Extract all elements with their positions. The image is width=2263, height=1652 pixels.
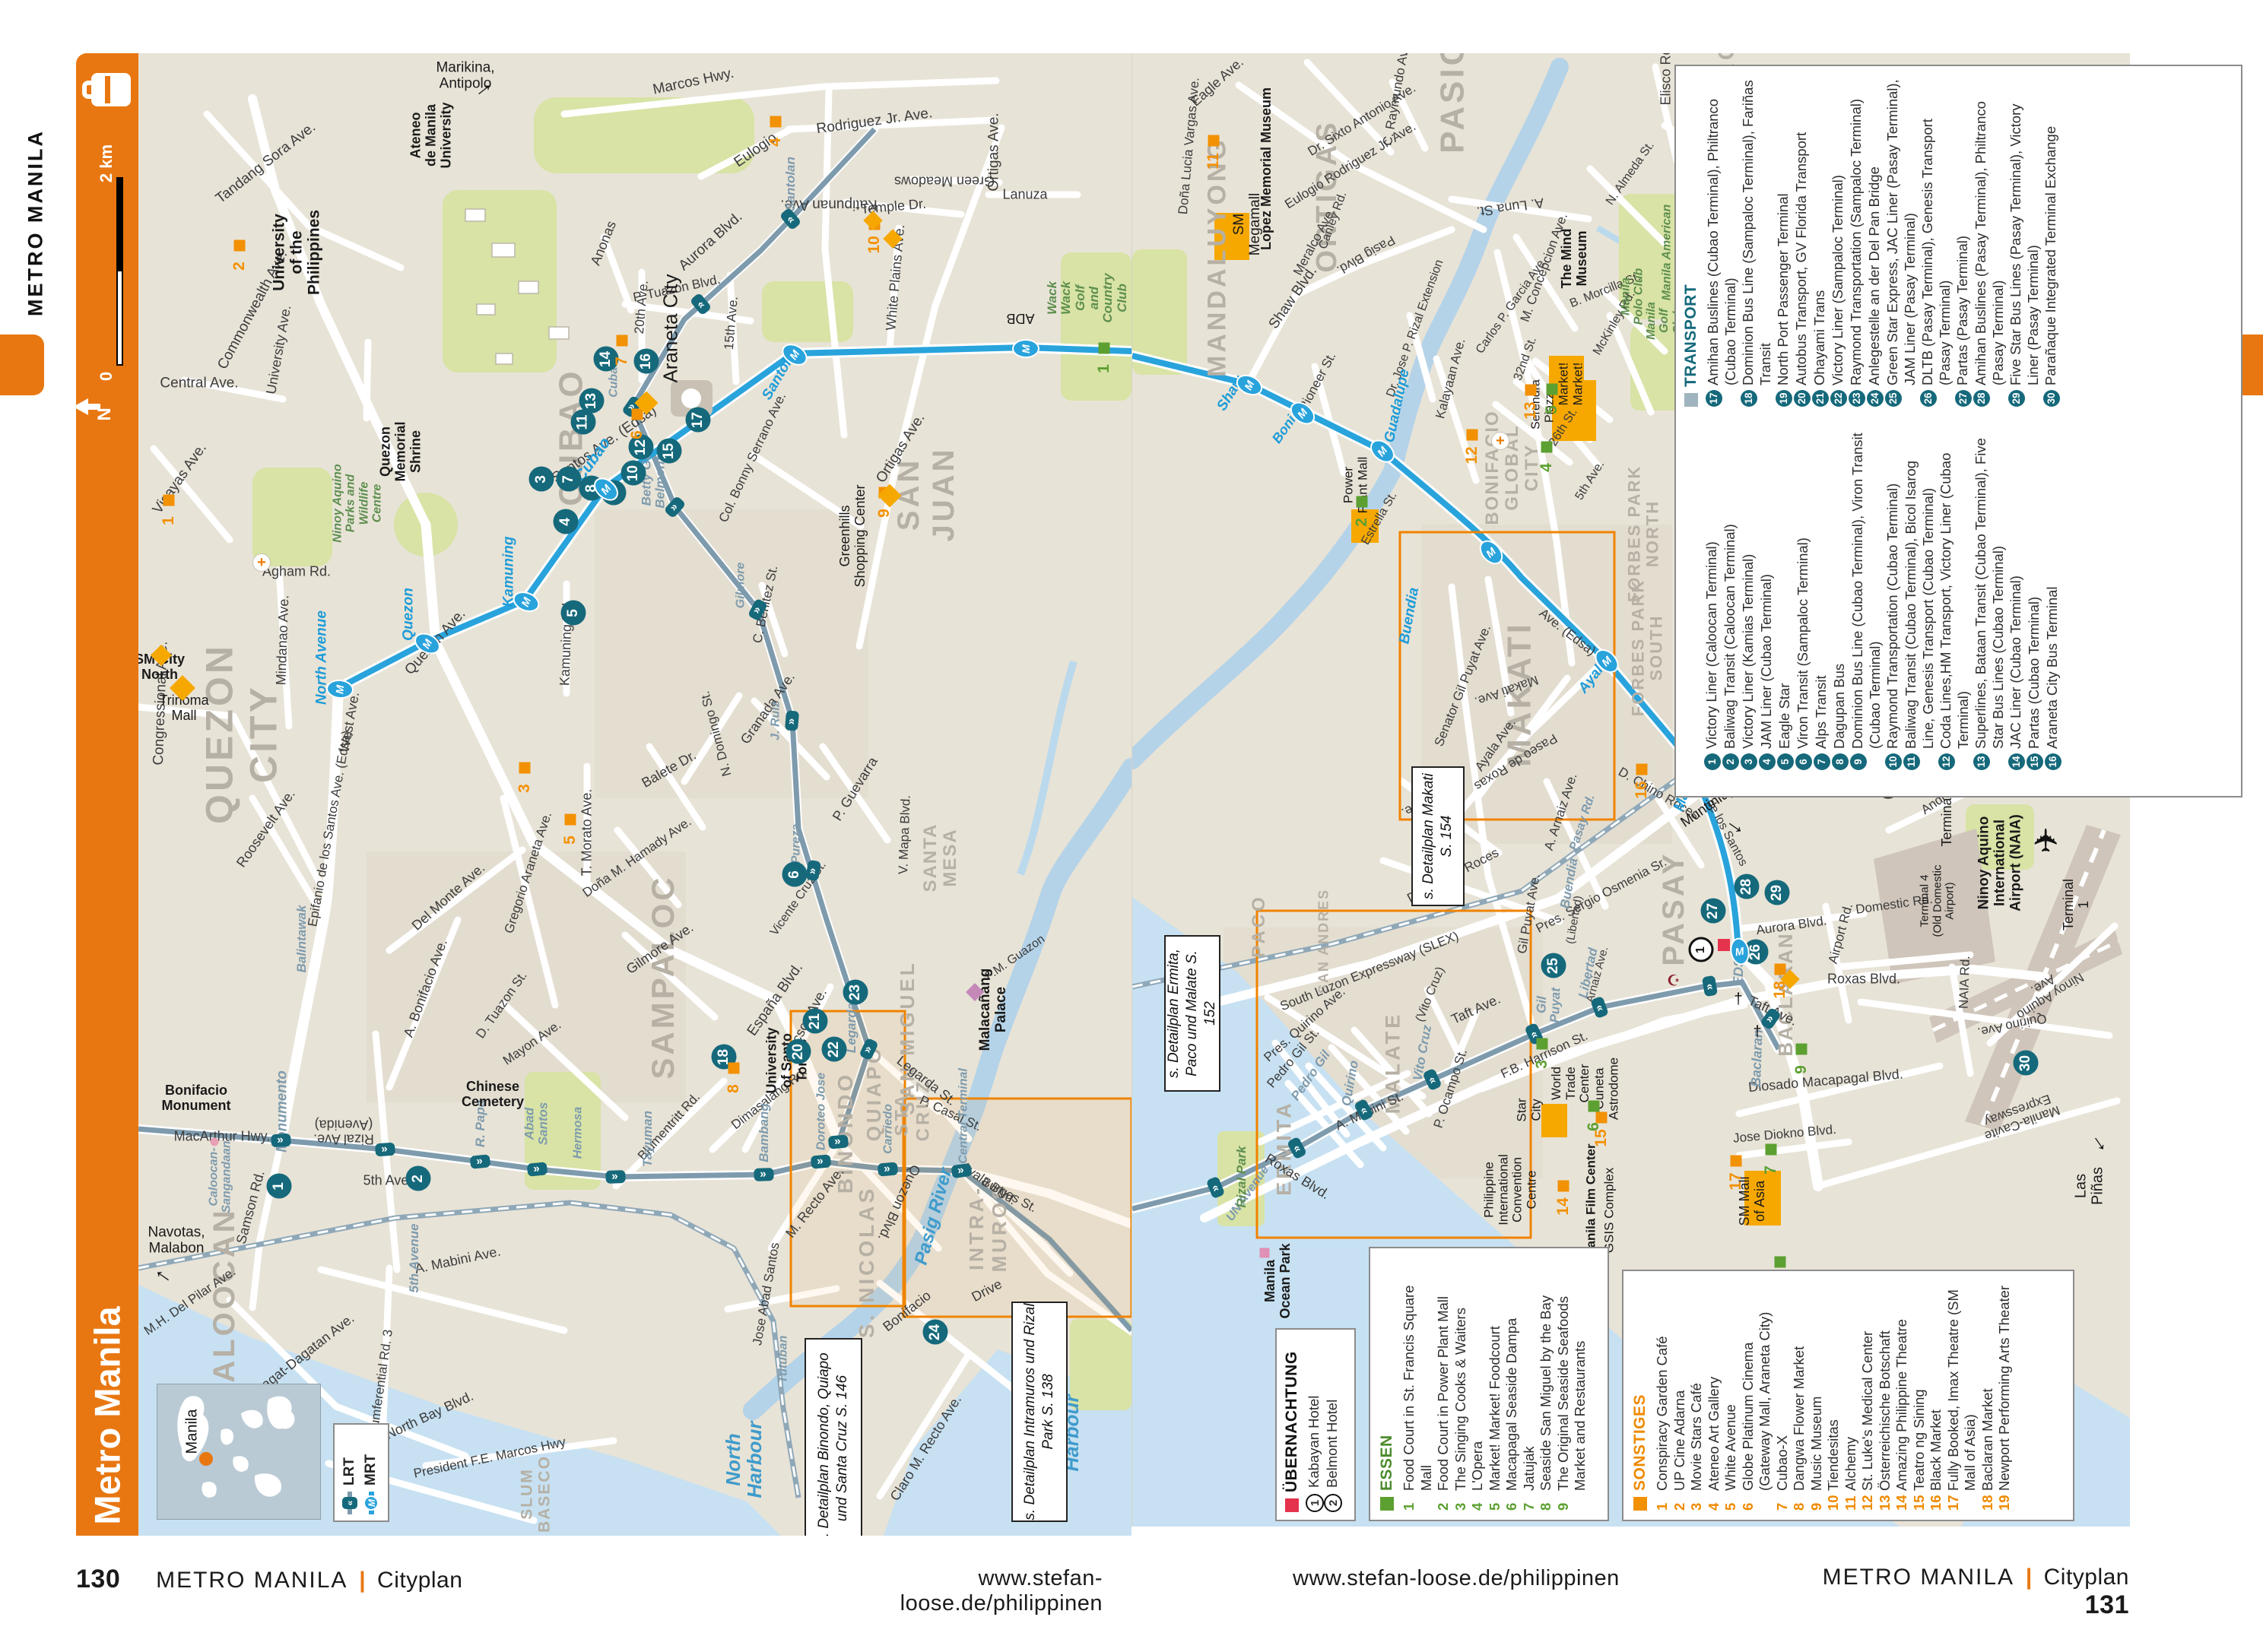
sonstiges-marker — [1636, 764, 1648, 775]
sonstiges-item-label: St. Luke's Medical Center — [1859, 1280, 1877, 1491]
page-title: Metro Manila — [87, 1306, 129, 1524]
transport-legend-item: 30Parañaque Integrated Terminal Exchange — [2042, 72, 2060, 407]
book-spread: { "title": "Metro Manila", "margin_label… — [0, 0, 2263, 1652]
transport-legend-item: 7Alps Transit — [1813, 431, 1830, 770]
lrt-line-icon: « — [348, 1492, 352, 1514]
transport-item-label: Dagupan Bus — [1831, 431, 1849, 749]
sonstiges-marker — [617, 335, 628, 347]
transport-item-number: 27 — [1955, 390, 1972, 407]
transport-legend-item: 22Victory Liner (Sampaloc Terminal) — [1830, 72, 1847, 407]
sonstiges-item: 2UP Cine Adarna — [1671, 1280, 1689, 1511]
transport-item-label: Baliwag Transit (Cubao Terminal), Bicol … — [1903, 431, 1937, 749]
essen-marker — [1357, 496, 1368, 508]
sonstiges-item-number: 17 — [1945, 1491, 1979, 1511]
transport-item-number: 19 — [1776, 390, 1792, 407]
transport-legend-item: 28Amihan Buslines (Pasay Terminal), Phil… — [1973, 72, 2007, 407]
essen-item: 8Seaside San Miguel by the Bay — [1538, 1257, 1555, 1511]
transport-legend-item: 12Coda Lines,HM Transport, Victory Liner… — [1938, 431, 1972, 770]
monument-dot — [211, 1138, 219, 1146]
transport-item-label: Partas (Cubao Terminal) — [2026, 431, 2043, 749]
transport-item-label: Ohayami Trans — [1811, 72, 1829, 385]
detail-plan-reference[interactable]: s. Detailplan Ermita, Paco und Malate S.… — [1164, 935, 1220, 1092]
sonstiges-marker — [1208, 135, 1220, 147]
marker-number: 9 — [875, 509, 893, 518]
sonstiges-item: 19Newport Performing Arts Theater — [1996, 1280, 2014, 1511]
essen-marker — [1537, 1038, 1548, 1050]
marker-number: 2 — [230, 262, 249, 271]
sonstiges-item-label: Alchemy — [1842, 1280, 1860, 1491]
transport-legend-item: 18Dominion Bus Line (Sampaloc Terminal),… — [1740, 72, 1774, 407]
transport-legend-item: 25Green Star Express, JAC Liner (Pasay T… — [1884, 72, 1919, 407]
essen-item-number: 1 — [1401, 1491, 1435, 1511]
transport-item-number: 3 — [1741, 753, 1757, 770]
sonstiges-item-number: 3 — [1688, 1491, 1706, 1511]
essen-items: 1Food Court in St. Francis Square Mall2F… — [1401, 1257, 1589, 1511]
sonstiges-item: 13Österreichische Botschaft — [1877, 1280, 1894, 1511]
marker-number: 6 — [628, 430, 646, 439]
sonstiges-item-number: 2 — [1671, 1491, 1689, 1511]
footer-right: METRO MANILA | Cityplan 131 — [1795, 1565, 2129, 1620]
essen-item-number: 5 — [1487, 1491, 1504, 1511]
transport-legend-item: 16Araneta City Bus Terminal — [2044, 431, 2061, 770]
transport-legend-item: 9Dominion Bus Line (Cubao Terminal), Vir… — [1849, 431, 1884, 770]
lrt-station-icon: « — [470, 1154, 491, 1169]
transport-item-label: Eagle Star — [1776, 431, 1794, 749]
footer-left-subtitle: Cityplan — [377, 1568, 462, 1593]
transport-item-label: Araneta City Bus Terminal — [2044, 431, 2061, 749]
transport-item-label: Green Star Express, JAC Liner (Pasay Ter… — [1884, 72, 1919, 385]
transport-legend-item: 11Baliwag Transit (Cubao Terminal), Bico… — [1903, 431, 1937, 770]
footer-right-title: METRO MANILA — [1823, 1565, 2014, 1590]
mrt-station-icon: M — [1012, 339, 1039, 358]
sonstiges-item: 7Cubao-X — [1774, 1280, 1792, 1511]
transport-item-number: 22 — [1830, 390, 1847, 407]
lrt-station-icon: « — [605, 1170, 626, 1184]
hospital-icon: + — [252, 553, 271, 572]
sonstiges-item: 3Movie Stars Café — [1688, 1280, 1706, 1511]
transport-item-number: 6 — [1795, 753, 1812, 770]
sonstiges-item-number: 15 — [1911, 1491, 1928, 1511]
church-icon: † — [1753, 1024, 1761, 1042]
transport-item-label: Amihan Buslines (Pasay Terminal), Philtr… — [1973, 72, 2007, 385]
marker-number: 4 — [766, 138, 785, 147]
marker-number: 3 — [1533, 1060, 1551, 1069]
footer-left-page-number: 130 — [76, 1565, 120, 1593]
transport-legend-item: 17Amihan Buslines (Cubao Terminal), Phil… — [1705, 72, 1739, 407]
transport-item-label: Alps Transit — [1813, 431, 1830, 749]
north-arrow-icon — [73, 398, 88, 415]
transport-terminal-marker: 28 — [1735, 874, 1760, 899]
transport-item-label: Partas (Pasay Terminal) — [1954, 72, 1972, 385]
inset-city-label: Manila — [184, 1409, 202, 1454]
scale-bar — [116, 177, 123, 366]
transport-legend-box: 1Victory Liner (Caloocan Terminal)2Baliw… — [1674, 65, 2242, 797]
page-tab-left[interactable] — [0, 335, 44, 395]
sonstiges-item: 17Fully Booked, Imax Theatre (SM Mall of… — [1945, 1280, 1979, 1511]
essen-marker — [1589, 1101, 1600, 1112]
lrt-station-icon: « — [527, 1162, 548, 1177]
footer-right-page-number: 131 — [2085, 1590, 2129, 1619]
transport-item-label: Dominion Bus Line (Cubao Terminal), Viro… — [1849, 431, 1884, 749]
essen-item-label: Food Court in Power Plant Mall — [1435, 1257, 1452, 1491]
detail-plan-reference[interactable]: s. Detailplan Intramuros und Rizal Park … — [1011, 1302, 1068, 1522]
uebernachtung-item-label: Kabayan Hotel — [1306, 1337, 1324, 1488]
transport-item-number: 24 — [1867, 390, 1884, 407]
marker-number: 4 — [1538, 463, 1556, 472]
sonstiges-item-label: Cubao-X — [1774, 1280, 1792, 1491]
essen-heading: ESSEN — [1378, 1257, 1396, 1511]
marker-number: 14 — [1554, 1197, 1573, 1215]
transport-item-number: 21 — [1812, 390, 1829, 407]
transport-item-number: 1 — [1704, 753, 1721, 770]
sonstiges-item-label: Globe Platinum Cinema (Gateway Mall, Ara… — [1740, 1280, 1774, 1491]
sonstiges-item-number: 8 — [1791, 1491, 1808, 1511]
transport-terminal-marker: 25 — [1541, 953, 1566, 978]
essen-item-label: Seaside San Miguel by the Bay — [1538, 1257, 1555, 1491]
sonstiges-marker — [234, 240, 246, 252]
publisher-luggage-icon — [91, 73, 131, 106]
transport-item-number: 7 — [1814, 753, 1830, 770]
detail-plan-reference[interactable]: s. Detailplan Binondo, Quiapo und Santa … — [805, 1338, 862, 1536]
essen-item-number: 9 — [1555, 1491, 1589, 1511]
sonstiges-item: 11Alchemy — [1842, 1280, 1860, 1511]
marker-number: 5 — [1543, 405, 1561, 414]
sonstiges-item-label: Fully Booked, Imax Theatre (SM Mall of A… — [1945, 1280, 1979, 1491]
footer-left-separator: | — [359, 1568, 366, 1593]
map-left-page: QUEZON CITYCUBAOSAMPALOCSAN JUANCALOOCAN… — [138, 53, 1131, 1536]
sonstiges-item-label: Black Market — [1928, 1280, 1945, 1491]
transport-item-number: 5 — [1777, 753, 1794, 770]
transport-terminal-marker: 1 — [267, 1174, 292, 1199]
transport-legend-item: 10Raymond Transportation (Cubao Terminal… — [1884, 431, 1902, 770]
transport-terminal-marker: 29 — [1765, 880, 1790, 905]
sonstiges-item: 1Conspiracy Garden Café — [1654, 1280, 1671, 1511]
essen-item: 7Jatujak — [1521, 1257, 1538, 1511]
rail-legend-mrt-row: M MRT — [360, 1431, 382, 1514]
inset-locator-map: Manila — [157, 1384, 321, 1520]
transport-item-label: Victory Liner (Caloocan Terminal) — [1703, 431, 1721, 749]
sonstiges-marker — [770, 116, 782, 128]
mrt-label: MRT — [363, 1454, 379, 1486]
transport-item-number: 17 — [1706, 390, 1722, 407]
transport-legend-item: 23Raymond Transportation (Sampaloc Termi… — [1848, 72, 1865, 407]
sonstiges-item-number: 4 — [1706, 1491, 1723, 1511]
transport-legend-item: 27Partas (Pasay Terminal) — [1954, 72, 1972, 407]
sonstiges-marker — [565, 814, 576, 826]
essen-item: 9The Original Seaside Seafoods Market an… — [1555, 1257, 1589, 1511]
rail-legend-box: « LRT M MRT — [333, 1423, 389, 1522]
sonstiges-item-label: Ateneo Art Gallery — [1706, 1280, 1723, 1491]
essen-item-number: 4 — [1469, 1491, 1487, 1511]
essen-item-label: Food Court in St. Francis Square Mall — [1401, 1257, 1435, 1491]
sonstiges-item-number: 5 — [1722, 1491, 1740, 1511]
marker-number: 5 — [561, 836, 579, 845]
transport-terminal-marker: 7 — [557, 467, 582, 492]
essen-item-label: Macapagal Seaside Dampa — [1503, 1257, 1521, 1491]
transport-terminal-marker: 22 — [822, 1037, 847, 1062]
essen-marker — [1541, 442, 1553, 453]
essen-item: 5Market! Market! Foodcourt — [1487, 1257, 1504, 1511]
lrt-station-icon: « — [754, 1168, 774, 1181]
marker-number: 12 — [1463, 446, 1481, 464]
lrt-station-icon: « — [375, 1143, 395, 1157]
sonstiges-item-label: Dangwa Flower Market — [1791, 1280, 1808, 1491]
transport-item-number: 13 — [1973, 753, 1990, 770]
transport-list-17-30: TRANSPORT17Amihan Buslines (Cubao Termin… — [1682, 72, 2061, 407]
essen-item-number: 8 — [1538, 1491, 1555, 1511]
essen-marker — [1796, 1044, 1808, 1055]
sonstiges-item-number: 11 — [1842, 1491, 1860, 1511]
uebernachtung-item: 2Belmont Hotel — [1324, 1337, 1342, 1512]
transport-heading: TRANSPORT — [1682, 72, 1700, 407]
sonstiges-item-number: 16 — [1928, 1491, 1945, 1511]
transport-terminal-marker: 15 — [657, 439, 682, 464]
transport-item-label: JAC Liner (Cubao Terminal) — [2007, 431, 2025, 749]
transport-item-number: 15 — [2027, 753, 2043, 770]
transport-item-number: 16 — [2045, 753, 2061, 770]
sonstiges-item-label: Tiendesitas — [1825, 1280, 1842, 1491]
transport-terminal-marker: 13 — [579, 388, 605, 414]
lrt-label: LRT — [341, 1457, 358, 1486]
transport-item-label: Five Star Bus Lines (Pasay Terminal), Vi… — [2007, 72, 2042, 385]
transport-legend-item: 3Victory Liner (Kamias Terminal) — [1740, 431, 1757, 770]
sonstiges-item: 6Globe Platinum Cinema (Gateway Mall, Ar… — [1740, 1280, 1774, 1511]
footer-right-separator: | — [2026, 1565, 2033, 1590]
sonstiges-item-number: 14 — [1893, 1491, 1911, 1511]
detail-plan-text: s. Detailplan Makati S. 154 — [1413, 768, 1463, 905]
transport-item-number: 9 — [1850, 753, 1867, 770]
sonstiges-item-number: 10 — [1825, 1491, 1842, 1511]
transport-item-label: Dominion Bus Line (Sampaloc Terminal), F… — [1740, 72, 1774, 385]
transport-item-label: Raymond Transportation (Sampaloc Termina… — [1848, 72, 1865, 385]
transport-item-number: 8 — [1832, 753, 1849, 770]
sonstiges-item-label: Conspiracy Garden Café — [1654, 1280, 1671, 1491]
transport-item-number: 25 — [1885, 390, 1902, 407]
footer-left-title: METRO MANILA — [156, 1568, 348, 1593]
transport-item-number: 20 — [1794, 390, 1811, 407]
essen-item: 3The Singing Cooks & Waiters — [1452, 1257, 1470, 1511]
essen-legend-box: ESSEN 1Food Court in St. Francis Square … — [1369, 1247, 1609, 1521]
marker-number: 2 — [1353, 518, 1371, 527]
marker-number: 7 — [613, 357, 631, 366]
transport-terminal-marker: 10 — [621, 461, 646, 486]
sonstiges-marker — [1525, 385, 1537, 396]
transport-item-label: Raymond Transportation (Cubao Terminal) — [1884, 431, 1902, 749]
lrt-station-icon: « — [785, 710, 799, 731]
essen-item-label: The Singing Cooks & Waiters — [1452, 1257, 1470, 1491]
essen-item: 4L'Opera — [1469, 1257, 1487, 1511]
sonstiges-item: 16Black Market — [1928, 1280, 1945, 1511]
sonstiges-item-number: 9 — [1808, 1491, 1826, 1511]
sonstiges-item-label: Baclaran Market — [1979, 1280, 1997, 1491]
sonstiges-item-label: UP Cine Adarna — [1671, 1280, 1689, 1491]
uebernachtung-legend-box: ÜBERNACHTUNG 1Kabayan Hotel2Belmont Hote… — [1275, 1328, 1356, 1521]
transport-item-label: Baliwag Transit (Caloocan Terminal) — [1722, 431, 1739, 749]
marker-number: 6 — [1585, 1122, 1603, 1131]
transport-legend-item: 8Dagupan Bus — [1831, 431, 1849, 770]
transport-terminal-marker: 16 — [634, 349, 659, 374]
transport-item-label: Amihan Buslines (Cubao Terminal), Philtr… — [1705, 72, 1739, 385]
transport-item-label: North Port Passenger Terminal — [1775, 72, 1792, 385]
essen-item-number: 7 — [1521, 1491, 1538, 1511]
transport-item-label: Superlines, Bataan Transit (Cubao Termin… — [1973, 431, 2007, 749]
sonstiges-item: 5White Avenue — [1722, 1280, 1740, 1511]
transport-legend-item: 2Baliwag Transit (Caloocan Terminal) — [1722, 431, 1739, 770]
transport-legend-item: 20Autobus Transport, GV Florida Transpor… — [1793, 72, 1811, 407]
marker-number: 13 — [1522, 401, 1540, 419]
sonstiges-marker — [728, 1063, 740, 1074]
transport-item-number: 18 — [1741, 390, 1757, 407]
map-left-base — [138, 53, 1131, 1536]
transport-item-label: Coda Lines,HM Transport, Victory Liner (… — [1938, 431, 1972, 749]
sonstiges-marker — [1775, 964, 1786, 975]
essen-item-label: L'Opera — [1469, 1257, 1487, 1491]
transport-item-number: 10 — [1885, 753, 1902, 770]
marker-number: 9 — [1792, 1065, 1811, 1074]
detail-plan-reference[interactable]: s. Detailplan Makati S. 154 — [1411, 766, 1465, 906]
transport-item-number: 23 — [1849, 390, 1865, 407]
transport-legend-item: 13Superlines, Bataan Transit (Cubao Term… — [1973, 431, 2007, 770]
transport-item-label: Viron Transit (Sampaloc Terminal) — [1795, 431, 1812, 749]
marker-number: 11 — [1204, 153, 1223, 170]
transport-terminal-marker: 30 — [2014, 1051, 2039, 1076]
transport-legend-item: 15Partas (Cubao Terminal) — [2026, 431, 2043, 770]
sonstiges-item-label: White Avenue — [1722, 1280, 1740, 1491]
detail-plan-text: s. Detailplan Binondo, Quiapo und Santa … — [806, 1340, 861, 1536]
marker-number: 15 — [1592, 1129, 1611, 1146]
sonstiges-heading: SONSTIGES — [1631, 1280, 1649, 1511]
essen-item-label: The Original Seaside Seafoods Market and… — [1555, 1257, 1589, 1491]
sonstiges-item-label: Teatro ng Sining — [1911, 1280, 1928, 1491]
detail-plan-text: s. Detailplan Ermita, Paco und Malate S.… — [1166, 937, 1219, 1090]
transport-item-label: Parañaque Integrated Terminal Exchange — [2042, 72, 2060, 385]
sonstiges-item: 15Teatro ng Sining — [1911, 1280, 1928, 1511]
uebernachtung-items: 1Kabayan Hotel2Belmont Hotel — [1306, 1337, 1342, 1512]
marker-number: 3 — [516, 784, 534, 793]
transport-terminal-marker: 6 — [782, 862, 808, 887]
mrt-line-icon: M — [369, 1492, 374, 1514]
footer-left-url[interactable]: www.stefan-loose.de/philippinen — [783, 1566, 1103, 1616]
marker-number: 1 — [1095, 364, 1113, 373]
sonstiges-item: 9Music Museum — [1808, 1280, 1826, 1511]
church-icon: † — [1734, 991, 1742, 1009]
essen-item: 1Food Court in St. Francis Square Mall — [1401, 1257, 1435, 1511]
hotel-number: 1 — [1689, 937, 1714, 962]
transport-terminal-marker: 5 — [561, 601, 586, 626]
sonstiges-marker — [1731, 1156, 1742, 1167]
sonstiges-marker — [1467, 430, 1478, 441]
essen-item-label: Jatujak — [1521, 1257, 1538, 1491]
essen-item-number: 6 — [1503, 1491, 1521, 1511]
footer-right-subtitle: Cityplan — [2044, 1565, 2129, 1590]
transport-list-1-16: 1Victory Liner (Caloocan Terminal)2Baliw… — [1703, 431, 2062, 770]
transport-legend-item: 29Five Star Bus Lines (Pasay Terminal), … — [2007, 72, 2042, 407]
marker-number: 8 — [725, 1084, 743, 1093]
sonstiges-item-number: 12 — [1859, 1491, 1877, 1511]
essen-item-number: 2 — [1435, 1491, 1452, 1511]
sonstiges-item: 12St. Luke's Medical Center — [1859, 1280, 1877, 1511]
sonstiges-item-number: 6 — [1740, 1491, 1774, 1511]
lrt-station-icon: « — [811, 1154, 831, 1168]
transport-terminal-marker: 2 — [406, 1166, 431, 1191]
transport-item-label: Victory Liner (Sampaloc Terminal) — [1830, 72, 1847, 385]
sonstiges-marker — [519, 763, 531, 774]
transport-item-label: Autobus Transport, GV Florida Transport — [1793, 72, 1811, 385]
essen-marker — [1775, 1257, 1786, 1268]
hotel-marker — [1718, 939, 1730, 951]
uebernachtung-item-label: Belmont Hotel — [1324, 1337, 1342, 1488]
sonstiges-item-label: Newport Performing Arts Theater — [1996, 1280, 2014, 1491]
sonstiges-item-label: Movie Stars Café — [1688, 1280, 1706, 1491]
sonstiges-item-number: 7 — [1774, 1491, 1792, 1511]
transport-item-number: 26 — [1920, 390, 1937, 407]
sonstiges-item-number: 1 — [1654, 1491, 1671, 1511]
sonstiges-legend-box: SONSTIGES 1Conspiracy Garden Café2UP Cin… — [1622, 1270, 2074, 1521]
transport-legend-item: 1Victory Liner (Caloocan Terminal) — [1703, 431, 1721, 770]
marker-number: 16 — [1633, 781, 1651, 798]
transport-item-label: Victory Liner (Kamias Terminal) — [1740, 431, 1757, 749]
airport-icon: ✈ — [2028, 826, 2065, 853]
essen-marker — [1766, 1144, 1777, 1156]
transport-item-number: 29 — [2008, 390, 2025, 407]
lrt-station-icon: « — [878, 1162, 898, 1176]
transport-legend-item: 19North Port Passenger Terminal — [1775, 72, 1792, 407]
detail-plan-text: s. Detailplan Intramuros und Rizal Park … — [1013, 1303, 1066, 1520]
transport-terminal-marker: 3 — [529, 467, 554, 492]
footer-right-url[interactable]: www.stefan-loose.de/philippinen — [1293, 1566, 1620, 1591]
transport-terminal-marker: 17 — [686, 407, 711, 433]
sonstiges-item-number: 18 — [1979, 1491, 1997, 1511]
transport-terminal-marker: 4 — [554, 509, 579, 534]
hospital-icon: + — [1491, 432, 1509, 450]
marker-number: 17 — [1727, 1172, 1745, 1190]
transport-item-number: 2 — [1722, 753, 1739, 770]
sonstiges-item: 18Baclaran Market — [1979, 1280, 1997, 1511]
uebernachtung-item-number: 1 — [1306, 1494, 1324, 1512]
lrt-station-icon: « — [828, 1134, 849, 1149]
transport-legend-item: 6Viron Transit (Sampaloc Terminal) — [1795, 431, 1812, 770]
scale-max-label: 2 km — [97, 144, 116, 182]
transport-terminal-marker: 23 — [843, 980, 868, 1005]
essen-item-number: 3 — [1452, 1491, 1470, 1511]
essen-item-label: Market! Market! Foodcourt — [1487, 1257, 1504, 1491]
transport-item-number: 4 — [1759, 753, 1776, 770]
uebernachtung-item: 1Kabayan Hotel — [1306, 1337, 1324, 1512]
sonstiges-item: 14Amazing Philippine Theatre — [1893, 1280, 1911, 1511]
mosque-icon: ☪ — [1667, 972, 1681, 991]
transport-terminal-marker: 20 — [786, 1039, 811, 1064]
uebernachtung-item-number: 2 — [1324, 1494, 1342, 1512]
sonstiges-item: 4Ateneo Art Gallery — [1706, 1280, 1723, 1511]
sonstiges-item-label: Österreichische Botschaft — [1877, 1280, 1894, 1491]
transport-legend-item: 24Anlegestelle an der Del Pan Bridge — [1866, 72, 1884, 407]
footer-left: 130 METRO MANILA | Cityplan — [76, 1565, 462, 1594]
sonstiges-items: 1Conspiracy Garden Café2UP Cine Adarna3M… — [1654, 1280, 2014, 1511]
sonstiges-marker — [1558, 1181, 1569, 1192]
sonstiges-item: 8Dangwa Flower Market — [1791, 1280, 1808, 1511]
marker-number: 1 — [160, 516, 178, 525]
transport-legend-item: 14JAC Liner (Cubao Terminal) — [2007, 431, 2025, 770]
transport-item-number: 30 — [2043, 390, 2060, 407]
sonstiges-item-label: Music Museum — [1808, 1280, 1826, 1491]
sonstiges-item-number: 19 — [1996, 1491, 2014, 1511]
essen-item: 2Food Court in Power Plant Mall — [1435, 1257, 1452, 1511]
sonstiges-item-label: Amazing Philippine Theatre — [1893, 1280, 1911, 1491]
transport-item-number: 12 — [1938, 753, 1955, 770]
transport-terminal-marker: 21 — [803, 1009, 828, 1034]
transport-item-number: 11 — [1903, 753, 1920, 770]
transport-terminal-marker: 27 — [1701, 899, 1726, 924]
